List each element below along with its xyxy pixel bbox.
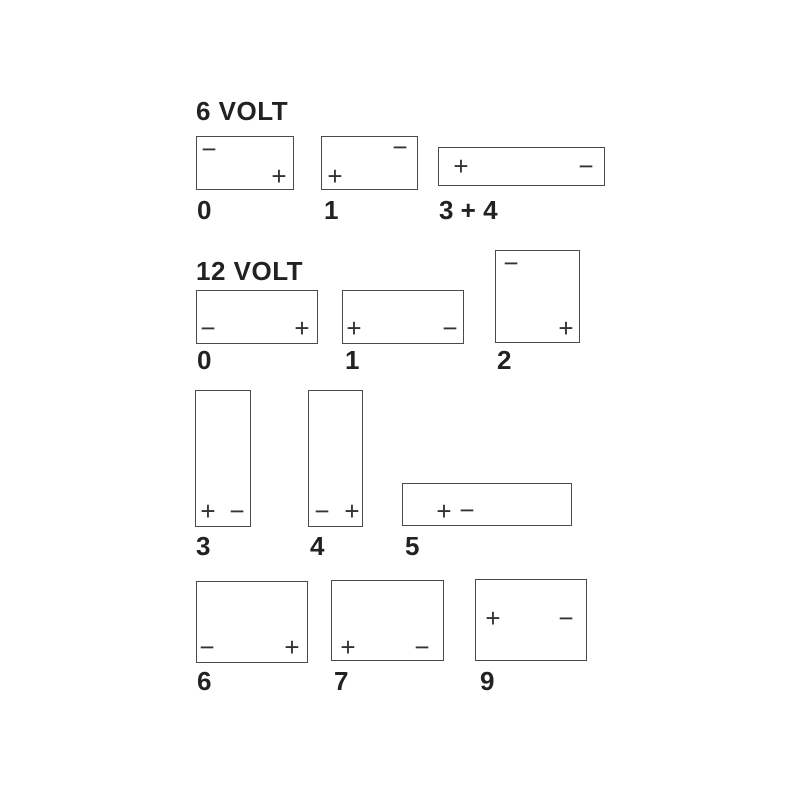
battery-label: 7 [334,668,348,694]
battery-label: 5 [405,533,419,559]
battery-label: 3 [196,533,210,559]
minus-terminal-icon: − [200,315,215,341]
battery-box [402,483,572,526]
battery-label: 0 [197,347,211,373]
battery-label: 4 [310,533,324,559]
minus-terminal-icon: − [414,634,429,660]
plus-terminal-icon: + [346,315,361,341]
battery-label: 2 [497,347,511,373]
battery-terminal-layout-diagram: 6 VOLT−+0+−1+−3 + 412 VOLT−+0+−1−+2+−3−+… [0,0,800,800]
battery-label: 6 [197,668,211,694]
plus-terminal-icon: + [344,498,359,524]
plus-terminal-icon: + [200,498,215,524]
minus-terminal-icon: − [201,136,216,162]
plus-terminal-icon: + [284,634,299,660]
minus-terminal-icon: − [199,634,214,660]
minus-terminal-icon: − [314,498,329,524]
plus-terminal-icon: + [453,153,468,179]
plus-terminal-icon: + [558,315,573,341]
battery-label: 1 [324,197,338,223]
minus-terminal-icon: − [392,134,407,160]
plus-terminal-icon: + [327,163,342,189]
minus-terminal-icon: − [229,498,244,524]
battery-label: 1 [345,347,359,373]
plus-terminal-icon: + [436,498,451,524]
battery-label: 3 + 4 [439,197,498,223]
minus-terminal-icon: − [578,153,593,179]
plus-terminal-icon: + [294,315,309,341]
plus-terminal-icon: + [340,634,355,660]
minus-terminal-icon: − [442,315,457,341]
section-heading: 6 VOLT [196,98,288,124]
minus-terminal-icon: − [558,605,573,631]
battery-label: 9 [480,668,494,694]
battery-label: 0 [197,197,211,223]
minus-terminal-icon: − [503,250,518,276]
plus-terminal-icon: + [271,163,286,189]
section-heading: 12 VOLT [196,258,303,284]
minus-terminal-icon: − [459,497,474,523]
plus-terminal-icon: + [485,605,500,631]
